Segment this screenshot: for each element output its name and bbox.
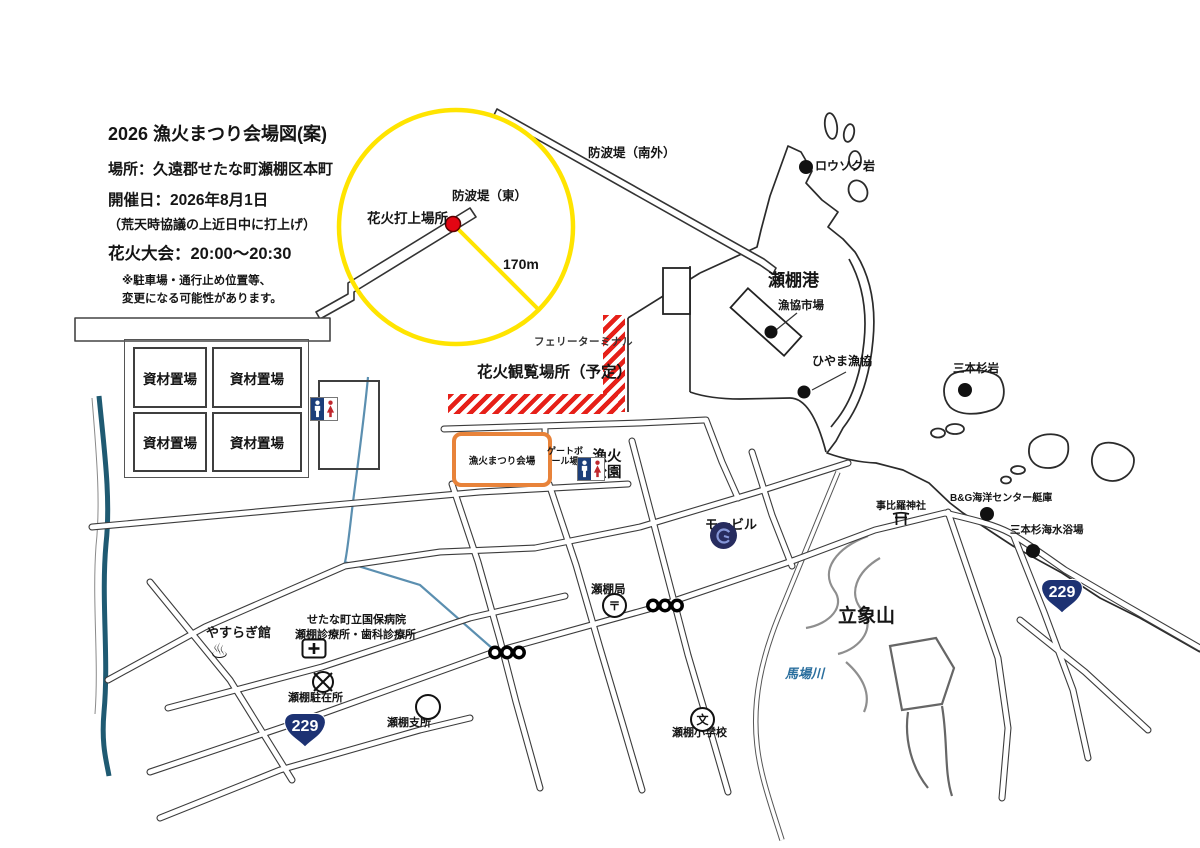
baba-river-casing bbox=[756, 472, 838, 840]
candle-rock-label: ロウソク岩 bbox=[815, 159, 875, 173]
venue-map-page: 2026 漁火まつり会場図(案) 場所：久遠郡せたな町瀬棚区本町 開催日：202… bbox=[0, 0, 1200, 848]
festival-venue-box: 漁火まつり会場 bbox=[452, 432, 552, 487]
restricted-area-horizontal bbox=[448, 394, 618, 414]
breakwater-south-label: 防波堤（南外） bbox=[588, 146, 676, 161]
fish-market-dot bbox=[765, 326, 778, 339]
beach-label: 三本杉海水浴場 bbox=[1010, 524, 1084, 537]
sanbonsugi-rock-label: 三本杉岩 bbox=[953, 363, 999, 377]
storage-box-3: 資材置場 bbox=[133, 412, 207, 472]
mountain-label: 立象山 bbox=[838, 606, 895, 629]
port-label: 瀬棚港 bbox=[768, 271, 819, 291]
traffic-light-icon-east bbox=[645, 597, 685, 619]
route-229-shield-west: 229 bbox=[282, 711, 328, 749]
storage-box-2: 資材置場 bbox=[212, 347, 302, 408]
post-office-icon: 〒 bbox=[602, 593, 627, 618]
baba-river-label: 馬場川 bbox=[785, 666, 824, 682]
onsen-icon: ♨ bbox=[210, 639, 229, 664]
disclaimer-line1: ※駐車場・通行止め位置等、 bbox=[122, 272, 271, 288]
hiyama-coop-dot bbox=[798, 386, 811, 399]
storage-box-1: 資材置場 bbox=[133, 347, 207, 408]
male-figure-icon bbox=[578, 458, 591, 480]
candle-rock-dot bbox=[799, 160, 813, 174]
sanbonsugi-rock-dot bbox=[958, 383, 972, 397]
viewing-area-label: 花火観覧場所（予定） bbox=[477, 364, 632, 383]
terrain-lines bbox=[806, 536, 954, 796]
ferry-terminal-label: フェリーターミナル bbox=[534, 336, 633, 349]
quay-building bbox=[318, 380, 380, 470]
school-icon: 文 bbox=[690, 707, 715, 732]
torii-icon bbox=[892, 511, 910, 531]
wharf-strip bbox=[75, 318, 330, 341]
svg-text:229: 229 bbox=[1049, 584, 1076, 601]
disclaimer-line2: 変更になる可能性があります。 bbox=[122, 290, 282, 306]
event-date: 開催日：2026年8月1日 bbox=[108, 188, 268, 210]
svg-text:229: 229 bbox=[292, 718, 319, 735]
bg-center-label: B&G海洋センター艇庫 bbox=[950, 493, 1052, 505]
traffic-light-icon-west bbox=[487, 644, 527, 666]
toilet-icon-park bbox=[577, 457, 605, 481]
storage-box-4: 資材置場 bbox=[212, 412, 302, 472]
hospital-label-line1: せたな町立国保病院 bbox=[307, 614, 406, 627]
male-figure-icon bbox=[311, 398, 324, 420]
fish-market-label: 漁協市場 bbox=[778, 300, 824, 314]
coastline bbox=[628, 146, 1200, 652]
toilet-icon-storage bbox=[310, 397, 338, 421]
route-229-shield-east: 229 bbox=[1039, 577, 1085, 615]
weather-note: （荒天時協議の上近日中に打上げ） bbox=[108, 214, 316, 233]
breakwater-south-outer bbox=[494, 109, 776, 274]
police-box-icon bbox=[310, 669, 336, 700]
page-title: 2026 漁火まつり会場図(案) bbox=[108, 120, 327, 146]
launch-point-label: 花火打上場所 bbox=[367, 211, 448, 227]
female-figure-icon bbox=[591, 458, 604, 480]
radius-label: 170m bbox=[503, 256, 539, 273]
branch-office-icon bbox=[415, 694, 441, 720]
left-river bbox=[99, 396, 109, 776]
mobil-gas-station-icon bbox=[710, 522, 737, 549]
bg-center-dot bbox=[980, 507, 994, 521]
beach-dot bbox=[1026, 544, 1040, 558]
female-figure-icon bbox=[324, 398, 337, 420]
road-casings bbox=[92, 420, 1200, 818]
baba-river-fill bbox=[756, 472, 838, 840]
event-location: 場所：久遠郡せたな町瀬棚区本町 bbox=[108, 158, 333, 179]
left-river-bank bbox=[92, 398, 98, 714]
breakwater-east-label: 防波堤（東） bbox=[452, 189, 527, 204]
hospital-icon bbox=[301, 638, 327, 664]
road-fills bbox=[92, 420, 1200, 818]
event-time: 花火大会：20:00～20:30 bbox=[108, 240, 291, 264]
hiyama-coop-label: ひやま漁協 bbox=[812, 354, 872, 368]
